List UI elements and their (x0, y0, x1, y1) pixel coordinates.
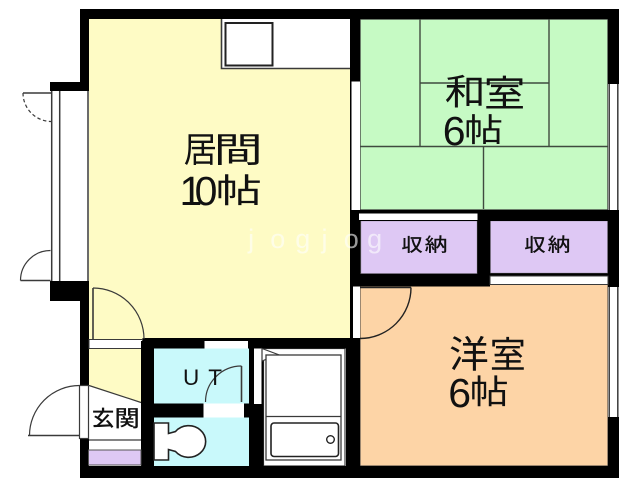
svg-text:6: 6 (443, 108, 466, 154)
svg-text:6: 6 (448, 370, 471, 416)
svg-text:10: 10 (180, 168, 218, 214)
